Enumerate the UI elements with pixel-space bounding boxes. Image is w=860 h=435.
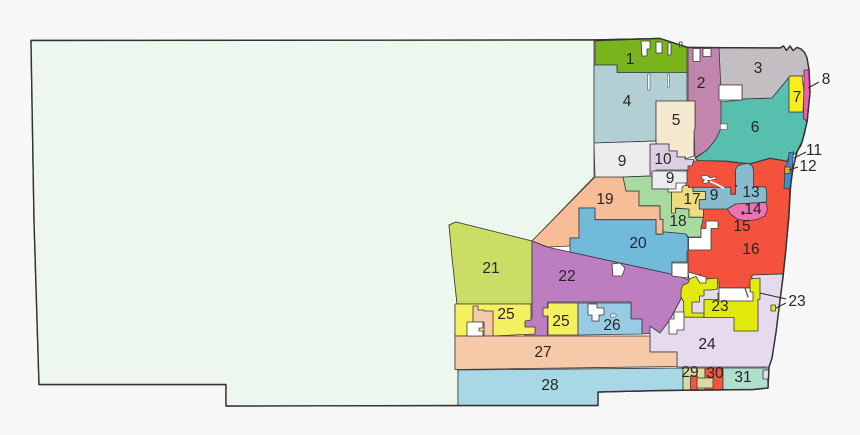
svg-text:20: 20 <box>629 235 647 252</box>
svg-text:9: 9 <box>618 153 627 170</box>
svg-text:15: 15 <box>733 218 750 235</box>
svg-text:2: 2 <box>697 75 706 92</box>
svg-text:7: 7 <box>793 89 802 106</box>
svg-text:24: 24 <box>698 336 716 353</box>
svg-text:30: 30 <box>706 365 724 382</box>
svg-text:5: 5 <box>672 112 681 129</box>
svg-text:23: 23 <box>711 298 728 315</box>
svg-text:27: 27 <box>534 344 551 361</box>
svg-text:29: 29 <box>681 364 698 381</box>
svg-text:28: 28 <box>541 377 558 394</box>
svg-text:10: 10 <box>654 151 672 168</box>
svg-text:8: 8 <box>822 71 831 88</box>
svg-text:21: 21 <box>482 260 499 277</box>
svg-text:14: 14 <box>744 201 762 218</box>
svg-text:12: 12 <box>799 158 816 175</box>
svg-text:13: 13 <box>742 184 759 201</box>
svg-text:16: 16 <box>742 241 759 258</box>
svg-text:25: 25 <box>552 313 569 330</box>
svg-text:31: 31 <box>734 369 751 386</box>
svg-text:1: 1 <box>626 51 635 68</box>
svg-text:9: 9 <box>710 187 719 204</box>
svg-text:19: 19 <box>596 191 613 208</box>
svg-text:23: 23 <box>788 293 805 310</box>
svg-text:17: 17 <box>683 191 700 208</box>
svg-text:26: 26 <box>603 317 620 334</box>
svg-text:11: 11 <box>806 142 822 159</box>
svg-text:9: 9 <box>666 170 675 187</box>
svg-text:6: 6 <box>751 119 760 136</box>
svg-text:4: 4 <box>623 93 632 110</box>
svg-text:22: 22 <box>558 268 575 285</box>
svg-text:3: 3 <box>754 60 763 77</box>
svg-text:18: 18 <box>669 213 686 230</box>
svg-text:25: 25 <box>497 306 514 323</box>
